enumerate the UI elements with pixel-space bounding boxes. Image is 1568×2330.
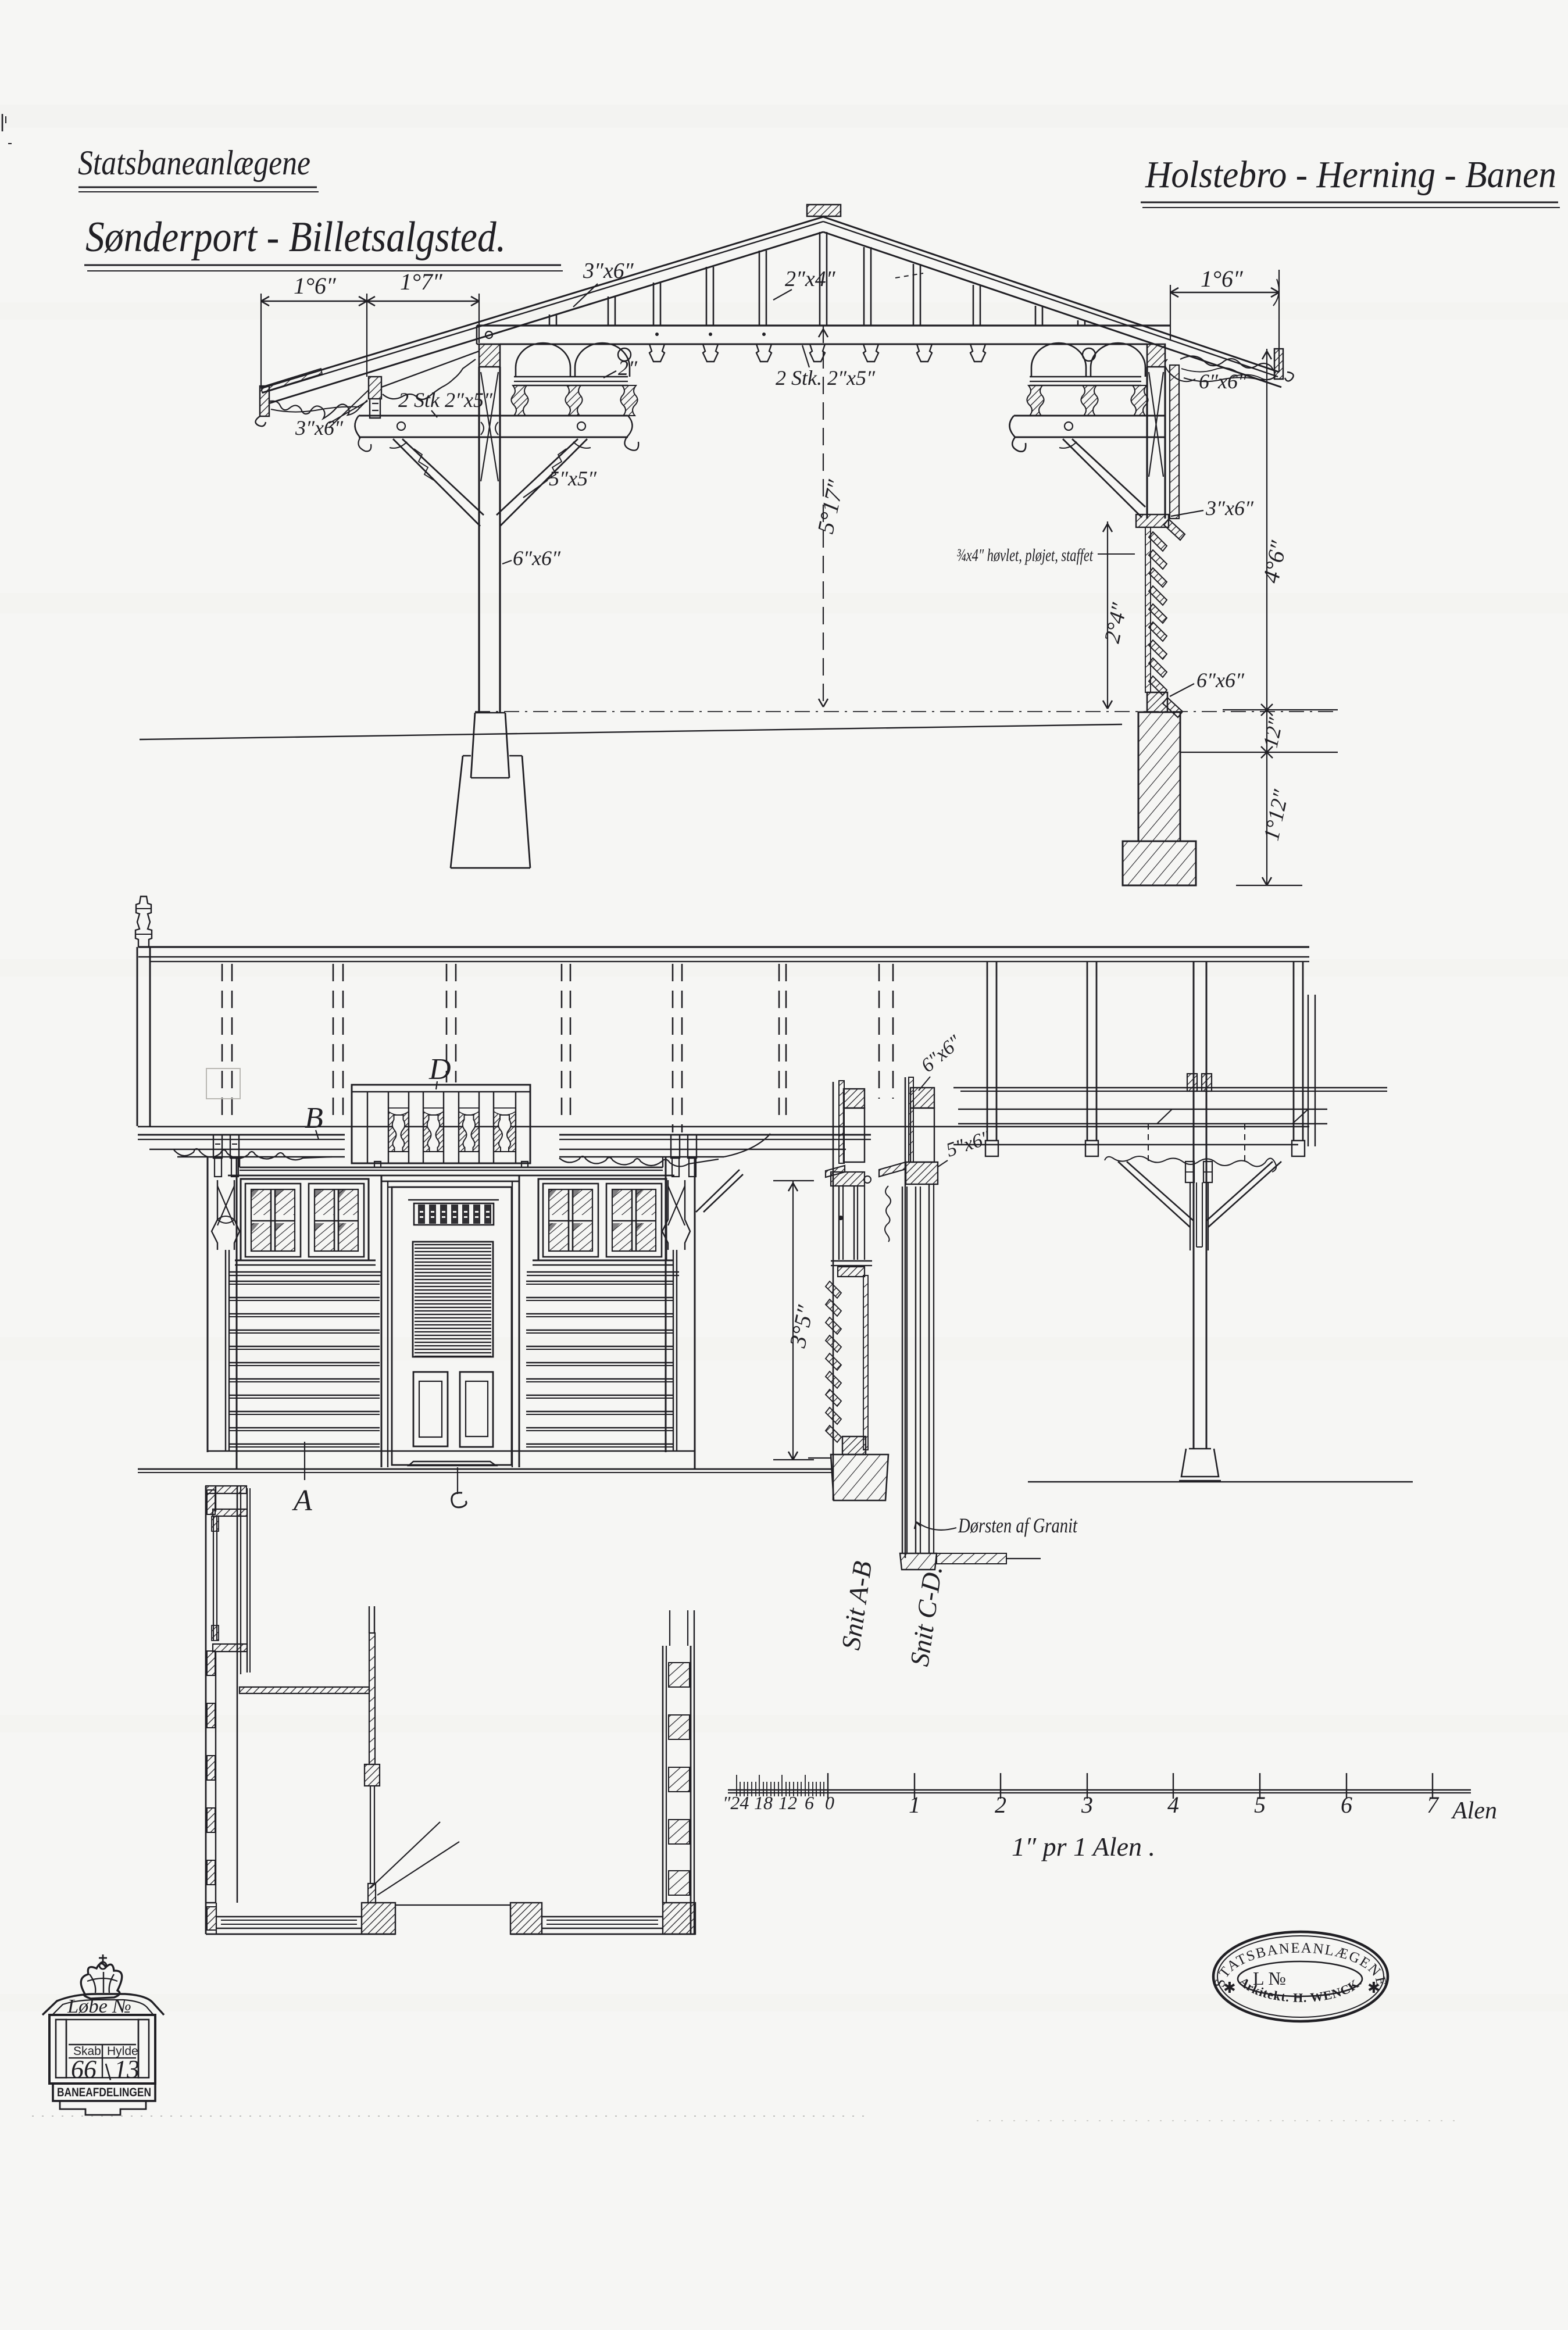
svg-text:L №: L № [1253,1968,1286,1989]
svg-text:Alen: Alen [1451,1797,1497,1824]
svg-text:7: 7 [1427,1792,1440,1818]
svg-text:Sønderport - Billetsalgsted.: Sønderport - Billetsalgsted. [85,213,506,261]
svg-text:2 Stk 2″x5″: 2 Stk 2″x5″ [398,388,493,412]
svg-text:¾x4″ høvlet, pløjet, staffet: ¾x4″ høvlet, pløjet, staffet [956,545,1094,565]
svg-text:6″x6″: 6″x6″ [513,546,561,570]
svg-text:✱: ✱ [1223,1979,1236,1996]
svg-text:2 Stk. 2″x5″: 2 Stk. 2″x5″ [776,366,876,389]
svg-text:A: A [292,1484,312,1517]
svg-text:2″x4″: 2″x4″ [785,267,836,291]
svg-text:5″x5″: 5″x5″ [549,467,597,490]
svg-text:6″x6″: 6″x6″ [1196,669,1245,692]
svg-text:Holstebro - Herning - Banen: Holstebro - Herning - Banen [1145,153,1556,196]
svg-text:″24: ″24 [723,1792,749,1813]
svg-text:Statsbaneanlægene: Statsbaneanlægene [78,144,310,182]
svg-text:12: 12 [778,1792,797,1813]
svg-text:3: 3 [1081,1792,1093,1818]
svg-text:4: 4 [1167,1792,1179,1818]
svg-text:0: 0 [825,1792,834,1813]
svg-text:6: 6 [1341,1792,1352,1818]
svg-text:✱: ✱ [1367,1979,1380,1996]
svg-text:1°6″: 1°6″ [1201,266,1244,292]
svg-text:Dørsten af Granit: Dørsten af Granit [958,1514,1078,1537]
svg-text:D: D [428,1053,451,1086]
svg-text:3″x6″: 3″x6″ [1205,496,1254,520]
svg-text:5: 5 [1254,1792,1266,1818]
svg-text:3″x6″: 3″x6″ [583,259,634,283]
svg-text:1″ pr 1 Alen .: 1″ pr 1 Alen . [1012,1832,1155,1861]
svg-text:13: 13 [114,2055,140,2084]
svg-text:66: 66 [71,2055,97,2084]
svg-text:1°6″: 1°6″ [294,273,337,299]
svg-text:2″: 2″ [618,356,638,380]
svg-text:6″x6″: 6″x6″ [1199,370,1247,393]
svg-text:18: 18 [754,1792,773,1813]
svg-text:2: 2 [995,1792,1006,1818]
svg-text:BANEAFDELINGEN: BANEAFDELINGEN [57,2086,151,2099]
svg-text:6: 6 [805,1792,814,1813]
svg-text:B: B [305,1102,323,1135]
svg-text:1: 1 [909,1792,920,1818]
svg-text:1°7″: 1°7″ [400,269,443,295]
